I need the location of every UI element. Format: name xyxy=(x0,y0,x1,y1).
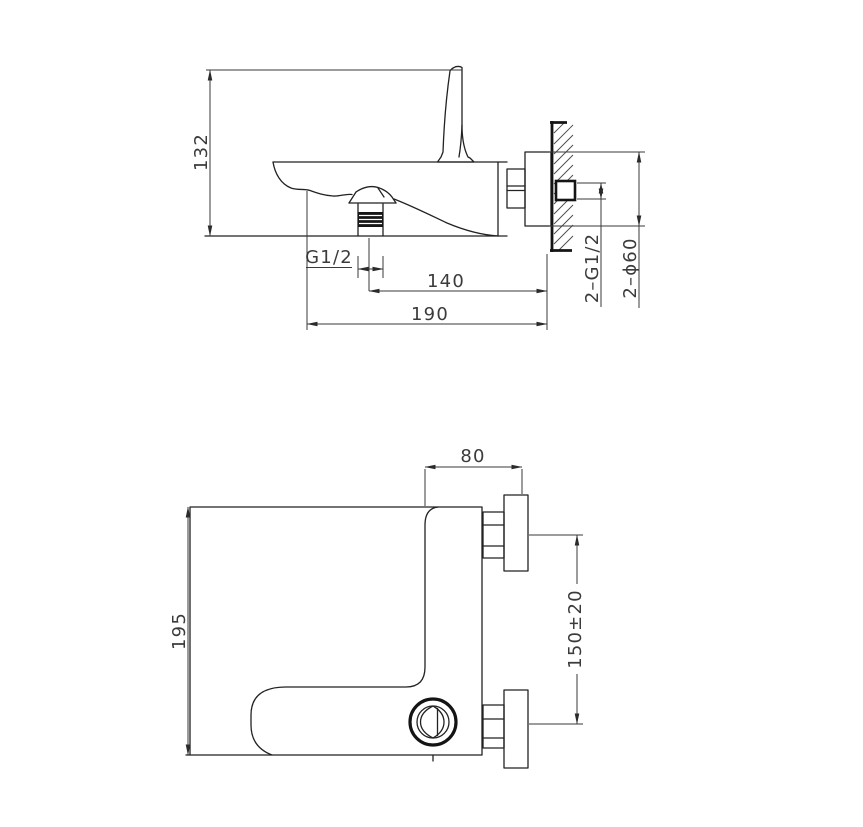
top-escutcheon xyxy=(504,495,528,571)
top-inlet-connection xyxy=(483,495,528,571)
dim-height-label: 132 xyxy=(191,133,212,171)
dim-total-depth-label: 190 xyxy=(411,304,449,325)
body-left-curve xyxy=(273,162,352,196)
front-view: 80 195 150±20 xyxy=(169,446,586,768)
dim-body-height-label: 195 xyxy=(169,612,190,650)
bottom-inlet-connection xyxy=(483,690,528,768)
dim-inlet-thread-label: 2–G1/2 xyxy=(582,233,603,304)
faucet-body xyxy=(205,162,507,236)
dim-top-offset: 80 xyxy=(425,446,522,506)
technical-drawing: 132 G1/2 140 190 xyxy=(0,0,863,827)
drawing-page: 132 G1/2 140 190 xyxy=(0,0,863,827)
dim-body-height: 195 xyxy=(169,507,190,755)
dim-spout-thread: G1/2 xyxy=(305,247,383,278)
dim-inlet-spacing: 150±20 xyxy=(529,535,586,724)
handle-lever xyxy=(438,66,475,162)
dim-top-offset-label: 80 xyxy=(460,446,485,467)
knob-lever-slot xyxy=(421,706,445,738)
side-view-dimensions: 132 G1/2 140 190 xyxy=(191,70,645,330)
dim-inlet-spacing-label: 150±20 xyxy=(565,589,586,669)
bottom-escutcheon xyxy=(504,690,528,768)
top-hex-nut xyxy=(483,512,504,558)
bottom-hex-nut xyxy=(483,705,504,748)
spout-aerator xyxy=(349,187,396,203)
dim-inlet-thread: 2–G1/2 xyxy=(577,183,606,307)
wall-escutcheon xyxy=(525,152,551,226)
inlet-fitting xyxy=(556,181,575,200)
mounting-nut xyxy=(507,169,525,208)
dim-spout-to-wall: 140 xyxy=(369,238,547,330)
dim-spout-thread-label: G1/2 xyxy=(305,247,353,268)
side-view: 132 G1/2 140 190 xyxy=(191,66,645,330)
body-under-curve xyxy=(394,199,498,236)
diverter-knob xyxy=(410,699,456,761)
dim-spout-to-wall-label: 140 xyxy=(427,271,465,292)
outlet-thread xyxy=(358,204,383,236)
handle-inner-line xyxy=(459,125,462,157)
dim-flange-diameter-label: 2–ϕ60 xyxy=(620,237,641,298)
wall-section xyxy=(550,121,575,252)
front-view-dimensions: 80 195 150±20 xyxy=(169,446,586,755)
